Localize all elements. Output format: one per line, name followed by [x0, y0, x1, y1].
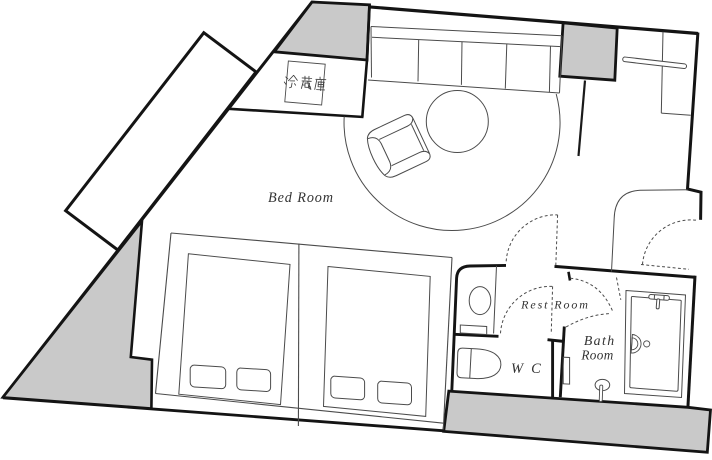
svg-text:Room: Room	[580, 348, 613, 363]
svg-text:Rest Room: Rest Room	[520, 298, 590, 312]
svg-text:Bed Room: Bed Room	[268, 190, 334, 206]
svg-text:W C: W C	[511, 361, 543, 377]
svg-text:Bath: Bath	[584, 333, 616, 348]
